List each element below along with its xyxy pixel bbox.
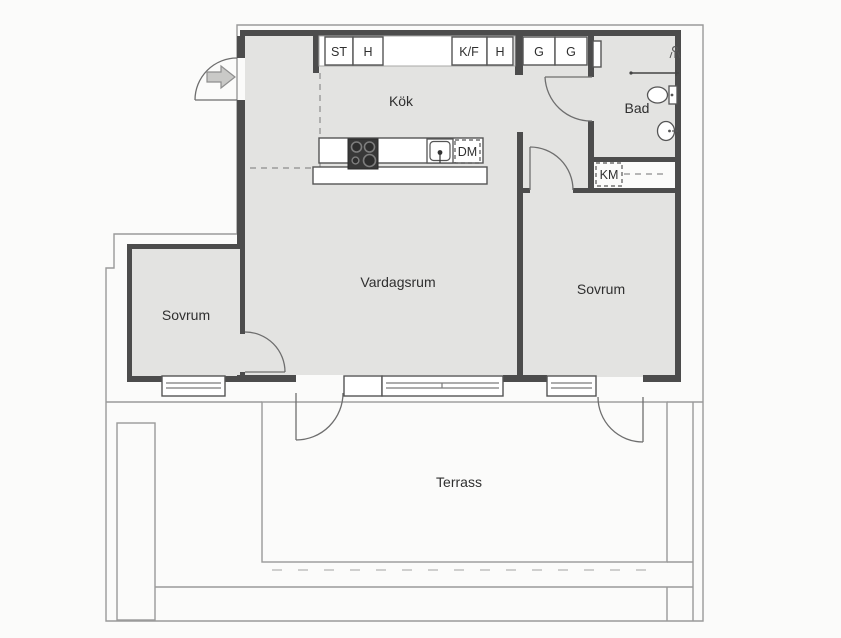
floor-west-bedroom-door-opening xyxy=(240,334,245,372)
basin-bowl xyxy=(658,122,675,141)
wall-north xyxy=(240,30,681,36)
room-label-bad: Bad xyxy=(625,100,650,116)
terrace-door-living-arc xyxy=(296,393,343,440)
wall-south-b xyxy=(503,375,547,382)
wall-bedroom-north-a xyxy=(517,188,530,193)
kitchen-island: DM xyxy=(313,138,487,184)
rail-end-left xyxy=(629,71,632,74)
window-living-large xyxy=(382,376,503,396)
wall-shared-west xyxy=(240,249,245,334)
room-label-sovrum-east: Sovrum xyxy=(577,281,625,297)
terrace-door-bedroom xyxy=(598,397,643,442)
floor-kitchen-hall-opening xyxy=(517,75,523,132)
entrance-door xyxy=(195,58,237,100)
wall-south-a xyxy=(237,375,296,382)
stove-icon xyxy=(348,139,378,169)
wall-kitchen-hall-top xyxy=(515,36,523,75)
arrow-right-icon xyxy=(207,66,235,88)
sink-drain xyxy=(438,150,443,155)
wall-east xyxy=(675,30,681,382)
window-frame xyxy=(162,376,225,396)
burner-3 xyxy=(352,157,359,164)
toilet-button xyxy=(671,94,674,97)
burner-4 xyxy=(364,155,376,167)
cabinet-label-h2: H xyxy=(495,45,504,59)
wall-kitchen-hall-lower xyxy=(517,132,523,377)
wall-bedroom-west-top xyxy=(127,244,245,249)
wardrobe-label-g2: G xyxy=(566,45,576,59)
wall-west-mid xyxy=(237,100,245,244)
kitchen-sink-icon xyxy=(427,139,453,163)
toilet-icon xyxy=(648,86,678,104)
wall-bath-south xyxy=(588,157,675,162)
terrace-door-living xyxy=(296,393,343,440)
floor-plan-svg: ST H K/F H G G DM xyxy=(0,0,841,638)
terrace-door-bedroom-arc xyxy=(598,397,643,442)
panel-frame xyxy=(344,376,382,396)
laundry-closet: KM xyxy=(596,163,668,186)
apartment-floors xyxy=(132,36,675,377)
window-bedroom-west xyxy=(162,376,225,396)
bathroom-niche xyxy=(593,41,601,67)
wall-bedroom-north-b xyxy=(573,188,681,193)
kitchen-counter-lower xyxy=(313,167,487,184)
room-label-kok: Kök xyxy=(389,93,414,109)
kitchen-cabinet-row: ST H K/F H G G xyxy=(319,36,587,66)
floor-plan-canvas: ST H K/F H G G DM xyxy=(0,0,841,638)
floor-living-kitchen xyxy=(245,36,517,375)
cabinet-label-st: ST xyxy=(331,45,347,59)
room-label-terrass: Terrass xyxy=(436,474,482,490)
burner-1 xyxy=(352,142,362,152)
terrace-left-strip xyxy=(117,423,155,620)
cabinet-label-h1: H xyxy=(363,45,372,59)
window-bedroom-east xyxy=(547,376,596,396)
wall-bedroom-west-south-a xyxy=(127,376,162,382)
washer-label: KM xyxy=(600,168,619,182)
floor-bedroom-door-opening xyxy=(530,188,573,193)
wall-kitchen-west-stub xyxy=(313,36,319,73)
wardrobe-label-g1: G xyxy=(534,45,544,59)
dishwasher-label: DM xyxy=(458,145,477,159)
cabinet-label-kf: K/F xyxy=(459,45,479,59)
window-frame xyxy=(547,376,596,396)
room-label-vardagsrum: Vardagsrum xyxy=(360,274,435,290)
room-label-sovrum-west: Sovrum xyxy=(162,307,210,323)
floor-bath-door-opening xyxy=(588,77,594,121)
wall-west-upper xyxy=(237,36,245,58)
wall-bedroom-west-left xyxy=(127,249,132,381)
toilet-bowl xyxy=(648,87,668,103)
window-living-panel xyxy=(344,376,382,396)
basin-drain xyxy=(668,130,671,133)
burner-2 xyxy=(365,142,375,152)
